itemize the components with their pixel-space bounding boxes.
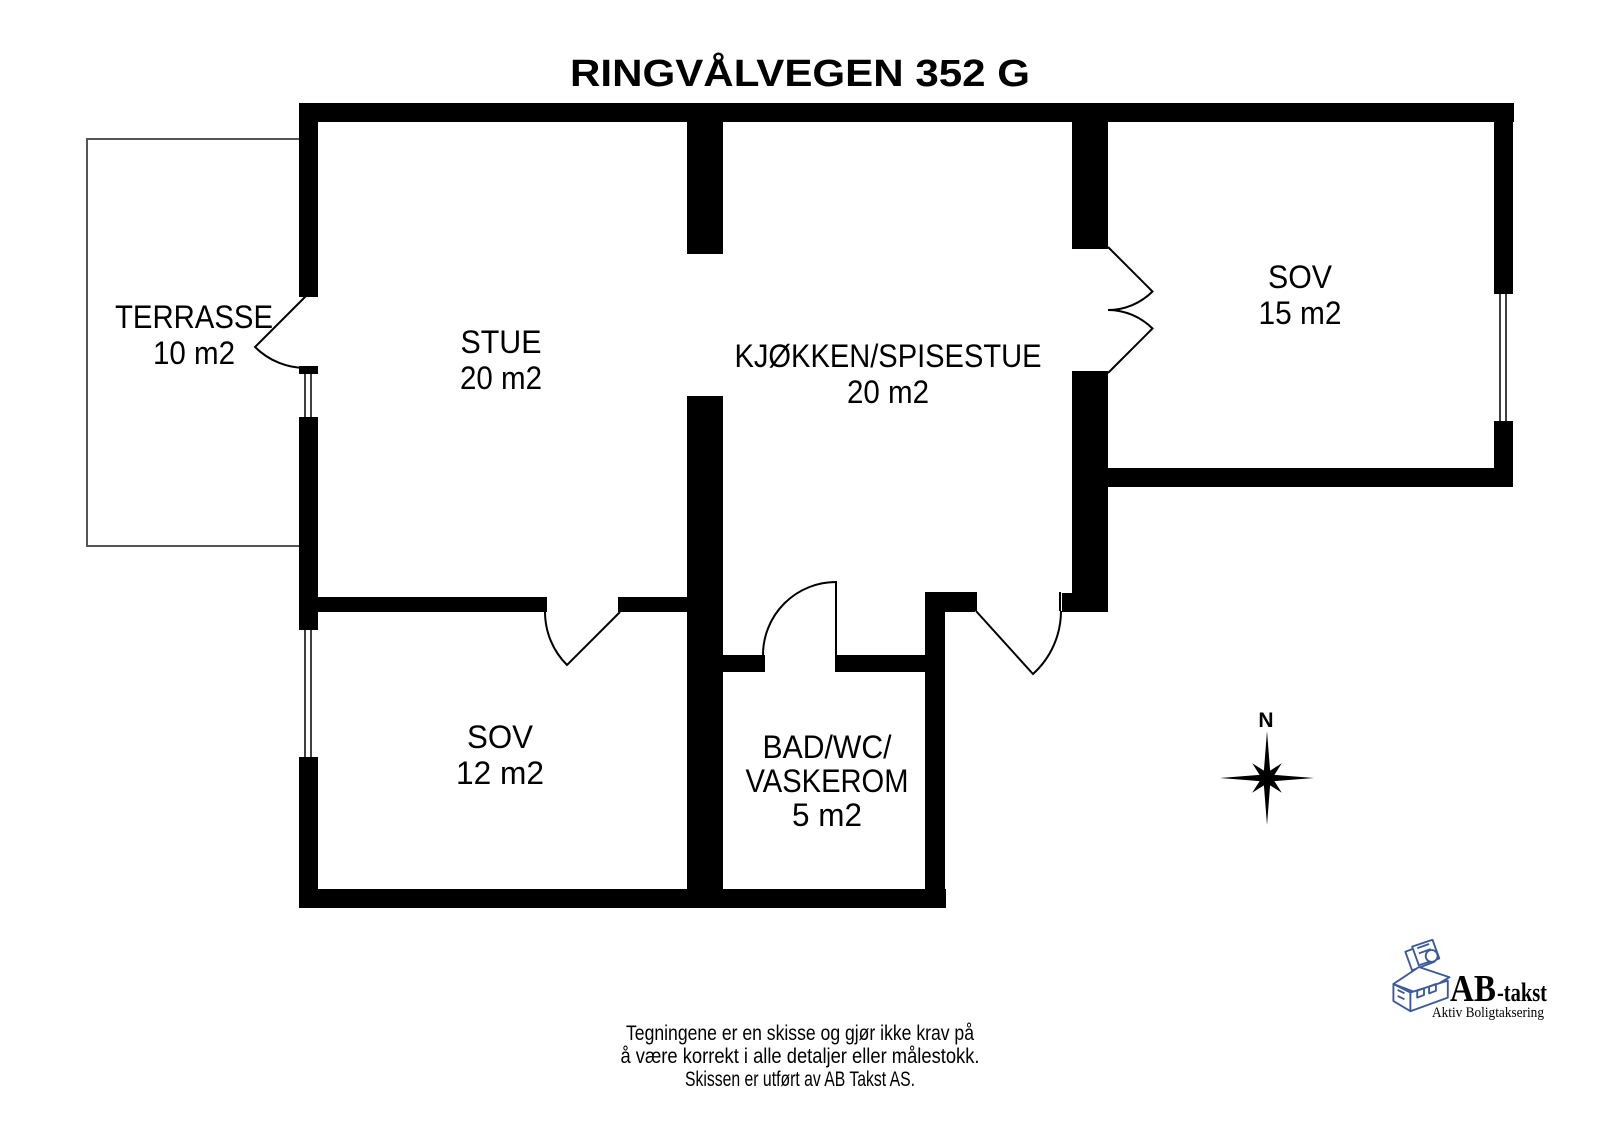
wall-entry-jamb — [1062, 593, 1108, 612]
wall-top — [299, 103, 1514, 122]
room-area: 5 m2 — [792, 797, 862, 833]
room-name-line2: VASKEROM — [746, 763, 909, 799]
floor-plan-page: RINGVÅLVEGEN 352 G — [0, 0, 1600, 1131]
door-entry-swing — [976, 611, 1061, 674]
logo: AB -takst Aktiv Boligtaksering — [1393, 940, 1547, 1021]
logo-coin — [1426, 950, 1438, 962]
room-name: SOV — [467, 719, 534, 755]
room-area: 20 m2 — [847, 374, 929, 410]
opening-bad-door — [763, 654, 837, 673]
disclaimer-line1: Tegningene er en skisse og gjør ikke kra… — [626, 1022, 974, 1045]
opening-entry-door — [975, 591, 1061, 612]
room-label-sov12: SOV 12 m2 — [456, 719, 544, 791]
room-name: KJØKKEN/SPISESTUE — [735, 338, 1042, 374]
room-area: 20 m2 — [460, 360, 542, 396]
opening-window-sov15 — [1493, 292, 1514, 423]
opening-terrasse-door — [298, 295, 319, 368]
opening-sov12-door — [545, 596, 620, 613]
room-label-kjokken-spisestue: KJØKKEN/SPISESTUE 20 m2 — [735, 338, 1042, 410]
room-label-stue: STUE 20 m2 — [460, 324, 542, 396]
door-bad-swing — [763, 582, 836, 655]
logo-tagline: Aktiv Boligtaksering — [1432, 1005, 1544, 1021]
disclaimer-line2: å være korrekt i alle detaljer eller mål… — [621, 1045, 980, 1068]
room-name: SOV — [1268, 259, 1333, 295]
wall-mid-vertical — [687, 122, 723, 889]
room-name-line1: BAD/WC/ — [763, 729, 892, 765]
opening-window-stue — [298, 372, 319, 419]
wall-bottom — [299, 889, 946, 908]
door-sov12-swing — [545, 612, 620, 665]
door-kjokken-sov15-top-swing — [1108, 247, 1153, 310]
wall-stue-sov12 — [318, 597, 687, 612]
compass: N — [1220, 709, 1314, 825]
logo-house-icon — [1393, 940, 1449, 1011]
room-area: 15 m2 — [1259, 295, 1342, 331]
compass-rose-icon — [1220, 731, 1314, 825]
disclaimer-line3: Skissen er utført av AB Takst AS. — [685, 1068, 915, 1091]
wall-sov15-bottom — [1108, 468, 1513, 487]
logo-brand: AB — [1450, 968, 1496, 1010]
room-name: TERRASSE — [115, 299, 273, 335]
room-area: 10 m2 — [153, 335, 235, 371]
opening-kjokken-sov15 — [1071, 247, 1109, 373]
floor-plan-canvas: RINGVÅLVEGEN 352 G — [0, 0, 1600, 1131]
room-label-terrasse: TERRASSE 10 m2 — [115, 299, 273, 371]
opening-window-sov12 — [298, 628, 319, 759]
room-area: 12 m2 — [456, 755, 544, 791]
wall-bad-right — [925, 592, 945, 889]
room-name: STUE — [461, 324, 542, 360]
opening-stue-kjokken — [686, 252, 724, 398]
wall-left — [299, 122, 318, 908]
room-label-sov15: SOV 15 m2 — [1259, 259, 1342, 331]
disclaimer: Tegningene er en skisse og gjør ikke kra… — [621, 1022, 980, 1091]
compass-north-label: N — [1258, 709, 1273, 732]
door-kjokken-sov15-bottom-swing — [1108, 310, 1153, 373]
page-title: RINGVÅLVEGEN 352 G — [570, 51, 1030, 95]
room-label-bad-wc-vaskerom: BAD/WC/ VASKEROM 5 m2 — [746, 729, 909, 833]
logo-brand-suffix: -takst — [1497, 978, 1547, 1007]
